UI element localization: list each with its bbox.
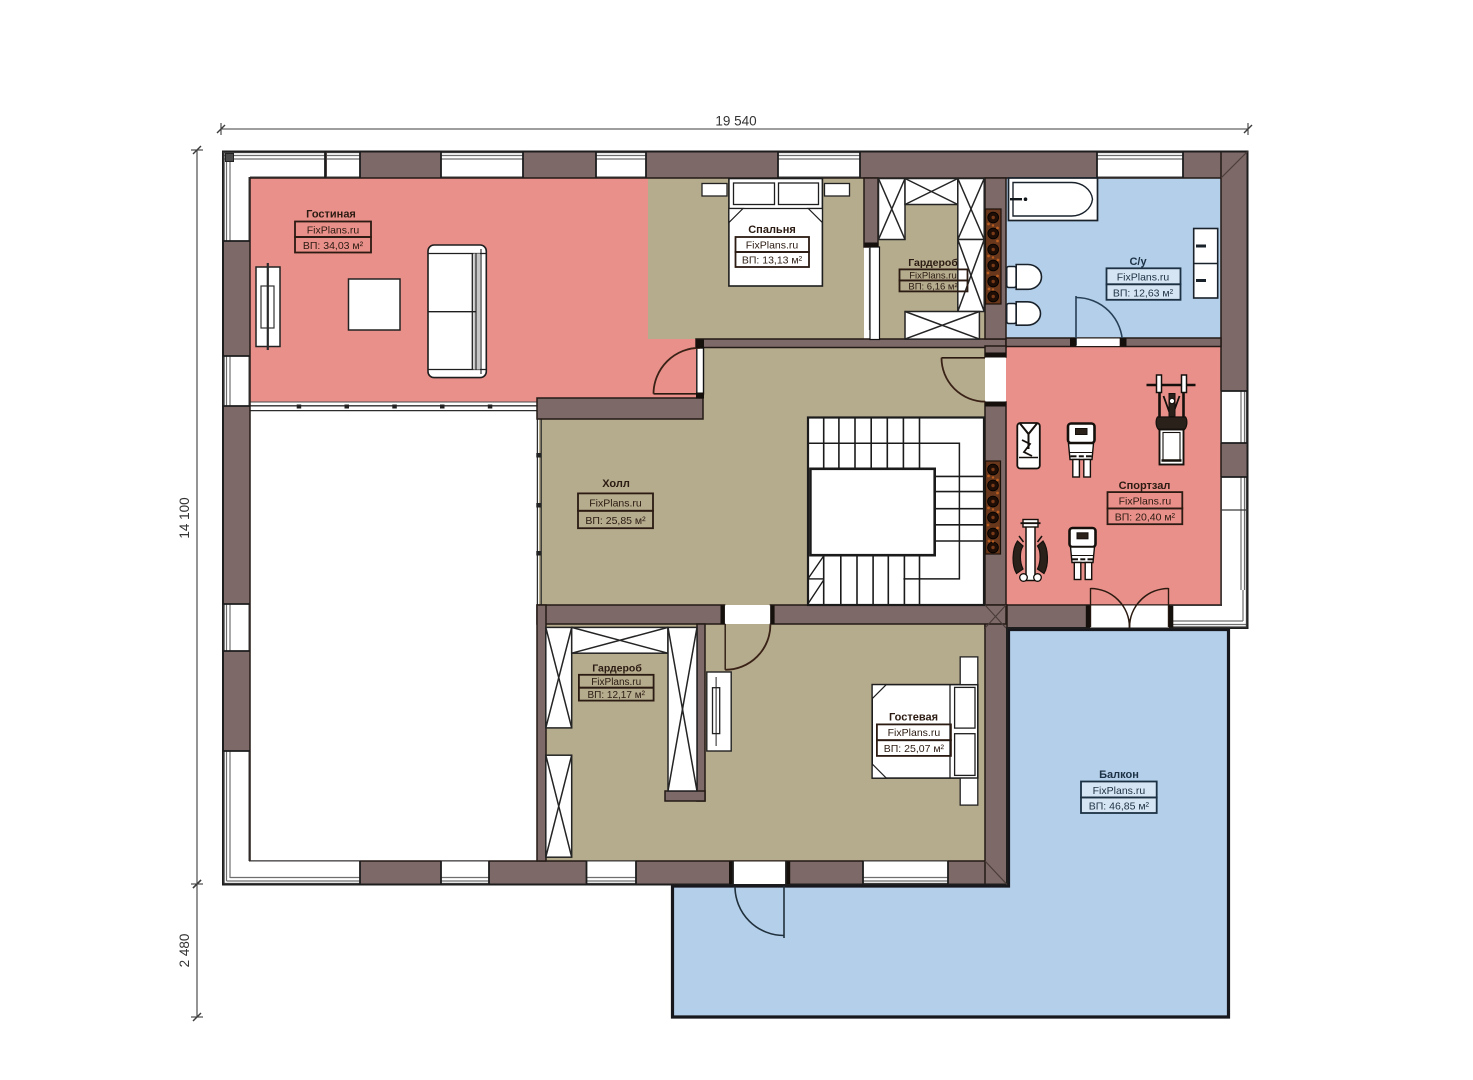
svg-text:Балкон: Балкон <box>1099 769 1139 781</box>
svg-text:FixPlans.ru: FixPlans.ru <box>1093 785 1146 797</box>
svg-text:FixPlans.ru: FixPlans.ru <box>1119 495 1172 507</box>
svg-text:FixPlans.ru: FixPlans.ru <box>746 240 799 252</box>
svg-text:2 480: 2 480 <box>177 934 192 968</box>
svg-text:ВП: 20,40 м²: ВП: 20,40 м² <box>1115 511 1176 523</box>
svg-text:Спальня: Спальня <box>748 224 796 236</box>
svg-text:FixPlans.ru: FixPlans.ru <box>589 497 642 509</box>
svg-text:FixPlans.ru: FixPlans.ru <box>1117 272 1170 284</box>
svg-text:ВП: 34,03 м²: ВП: 34,03 м² <box>303 240 364 252</box>
svg-text:ВП: 6,16 м²: ВП: 6,16 м² <box>908 281 957 292</box>
svg-text:ВП: 25,85 м²: ВП: 25,85 м² <box>585 515 646 527</box>
svg-text:Гардероб: Гардероб <box>592 663 642 675</box>
svg-text:FixPlans.ru: FixPlans.ru <box>591 677 641 688</box>
svg-text:Спортзал: Спортзал <box>1119 480 1171 492</box>
svg-text:ВП: 25,07 м²: ВП: 25,07 м² <box>884 743 945 755</box>
svg-text:FixPlans.ru: FixPlans.ru <box>888 727 941 739</box>
svg-text:Гостиная: Гостиная <box>306 209 356 221</box>
svg-text:ВП: 12,63 м²: ВП: 12,63 м² <box>1113 288 1174 300</box>
svg-text:С/у: С/у <box>1129 256 1147 268</box>
svg-text:Гардероб: Гардероб <box>908 257 958 269</box>
svg-text:FixPlans.ru: FixPlans.ru <box>909 270 957 281</box>
svg-text:Холл: Холл <box>602 478 630 490</box>
svg-text:Гостевая: Гостевая <box>889 712 938 724</box>
svg-text:14 100: 14 100 <box>177 497 192 538</box>
svg-text:ВП: 13,13 м²: ВП: 13,13 м² <box>742 255 803 267</box>
svg-text:FixPlans.ru: FixPlans.ru <box>307 225 360 237</box>
svg-text:19 540: 19 540 <box>715 114 756 129</box>
svg-text:ВП: 46,85 м²: ВП: 46,85 м² <box>1089 801 1150 813</box>
svg-text:ВП: 12,17 м²: ВП: 12,17 м² <box>587 690 645 701</box>
